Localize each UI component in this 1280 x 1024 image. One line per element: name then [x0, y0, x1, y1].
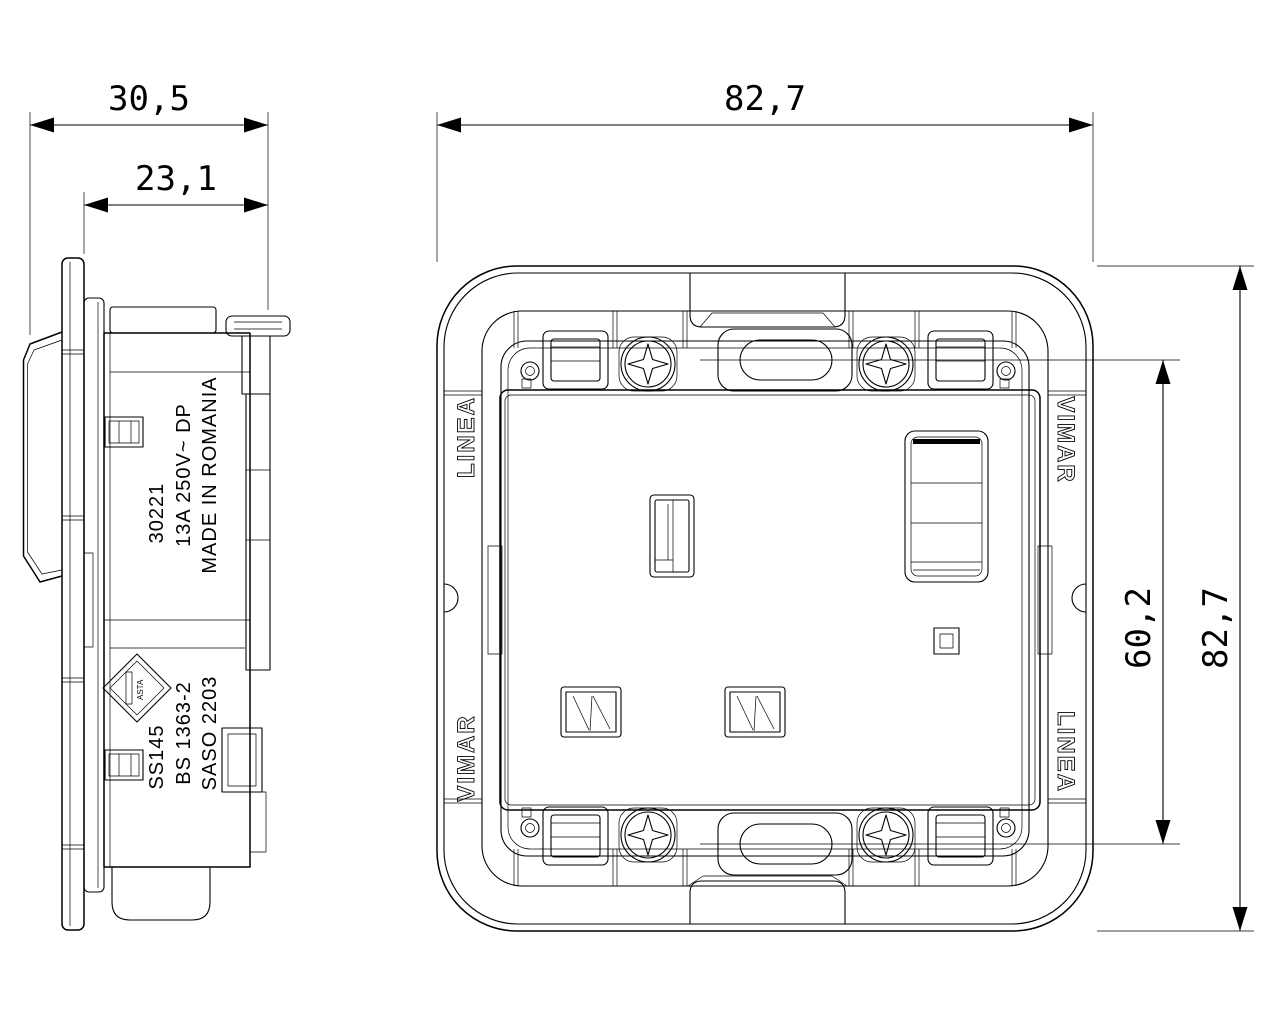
marking-model: SS145	[146, 724, 168, 789]
asta-logo: ASTA	[103, 654, 171, 722]
front-clips	[521, 331, 1015, 865]
asta-logo-text: ASTA	[136, 679, 145, 700]
side-claw-bottom	[105, 750, 143, 780]
marking-rating: 13A 250V~ DP	[173, 403, 195, 547]
earth-aperture	[650, 495, 694, 577]
side-markings: 30221 13A 250V~ DP MADE IN ROMANIA ASTA …	[103, 376, 221, 790]
marking-saso: SASO 2203	[199, 676, 221, 791]
side-dim-total-depth: 30,5	[30, 79, 268, 335]
side-view: 30,5 23,1	[24, 79, 291, 930]
brand-left-top: LINEA	[453, 396, 480, 478]
side-profile	[24, 258, 291, 930]
front-fixing-bottom	[688, 813, 852, 924]
dim-label-30-5: 30,5	[108, 79, 190, 119]
marking-part-number: 30221	[146, 483, 168, 544]
marking-standard: BS 1363-2	[173, 681, 195, 785]
rocker-switch	[905, 431, 988, 582]
dim-label-23-1: 23,1	[135, 159, 217, 199]
drawing-svg: 30,5 23,1	[0, 0, 1280, 1024]
front-dim-width: 82,7	[437, 79, 1093, 262]
side-fixing-screw	[226, 316, 290, 394]
screw-top-left	[621, 337, 675, 391]
front-frame	[437, 266, 1180, 931]
dim-label-centres: 60,2	[1119, 587, 1159, 669]
side-claw-top	[105, 417, 143, 447]
dim-label-height: 82,7	[1196, 587, 1236, 669]
front-fixing-top	[690, 273, 852, 391]
front-brand-texts: LINEA VIMAR VIMAR LINEA	[453, 396, 1079, 802]
neutral-aperture	[725, 687, 785, 737]
front-screws	[619, 337, 915, 862]
side-dim-embed-depth: 23,1	[84, 159, 268, 254]
dim-label-width: 82,7	[724, 79, 806, 119]
screw-top-right	[859, 337, 913, 391]
front-view: LINEA VIMAR VIMAR LINEA 82,7 60,2 82,7	[437, 79, 1254, 931]
neon-indicator	[934, 628, 959, 654]
line-aperture	[561, 687, 621, 737]
brand-left-bottom: VIMAR	[453, 714, 480, 801]
screw-bottom-right	[859, 808, 913, 862]
front-module	[488, 390, 1052, 810]
brand-right-top: VIMAR	[1052, 396, 1079, 483]
marking-origin: MADE IN ROMANIA	[199, 376, 221, 573]
screw-bottom-left	[621, 808, 675, 862]
technical-drawing-canvas: 30,5 23,1	[0, 0, 1280, 1024]
front-dim-centres: 60,2	[1119, 360, 1171, 844]
brand-right-bottom: LINEA	[1052, 711, 1079, 793]
